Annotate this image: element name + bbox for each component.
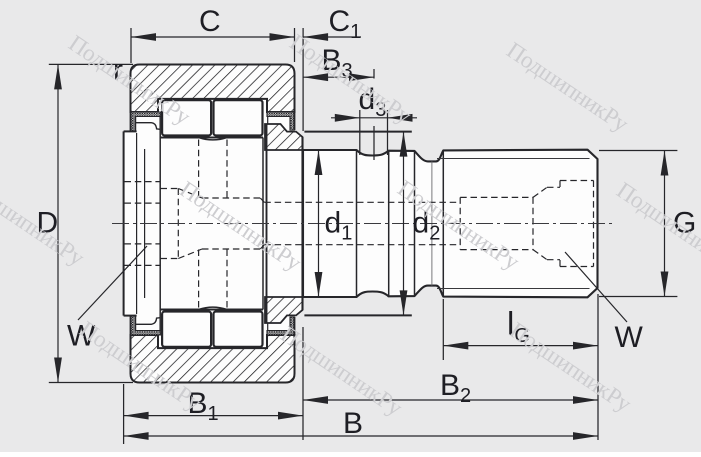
- svg-text:B: B: [343, 407, 363, 440]
- svg-text:W: W: [615, 321, 644, 354]
- svg-text:C: C: [199, 5, 221, 38]
